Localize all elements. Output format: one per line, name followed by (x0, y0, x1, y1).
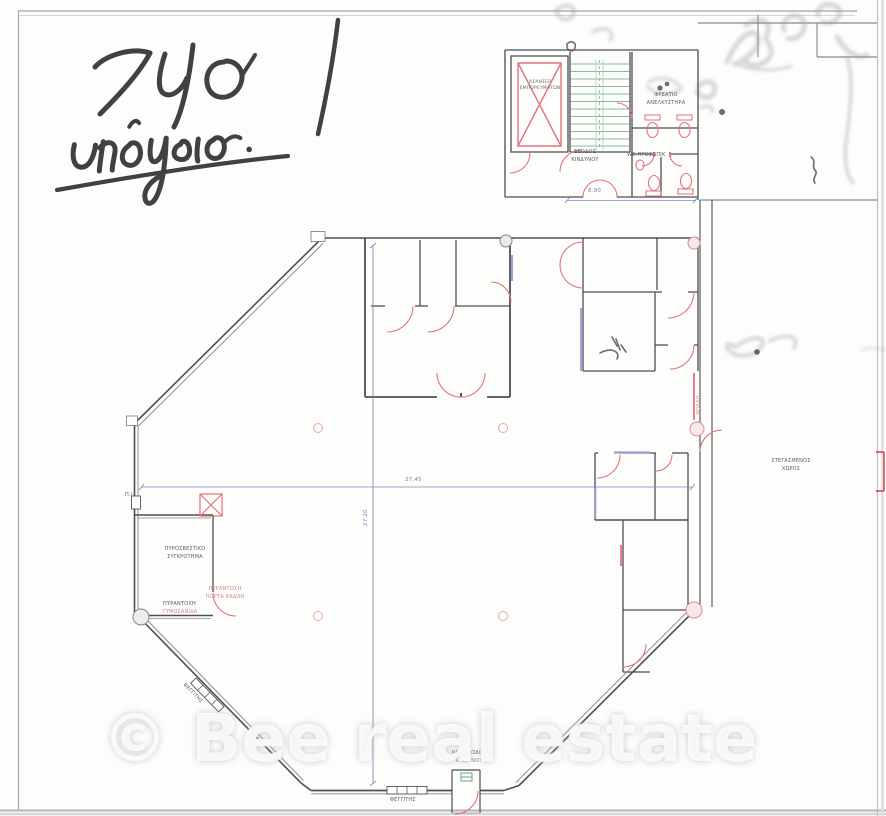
label-fire-board: ΠΥΡΑΝΤΟΧΗ ΓΥΨΟΣΑΝΙΔΑ (163, 601, 197, 616)
label-fire-door: ΠΥΡΑΝΤΟΧΗ ΠΟΡΤΑ ΚΑΔΩΝ (200, 586, 250, 601)
label-staff-wc: WC ΠΡΟΣΩΠΙΚ. (627, 152, 667, 160)
label-roller-shutter: ΡΟΛΛΟ (696, 395, 704, 414)
label-fire-pump-room: ΠΥΡΟΣΒΕΣΤΙΚΟ ΣΥΓΚΡΟΤΗΜΑ (150, 546, 220, 561)
lintel-accents (512, 255, 650, 519)
label-fire-hose-point: Π.Ι. (125, 492, 134, 500)
freight-elevator-shaft (518, 63, 561, 146)
columns (133, 235, 704, 625)
watermark: © Bee real estate (102, 700, 758, 777)
label-skylight-bottom: ΦΕΓΓΙΤΗΣ (390, 797, 416, 805)
dimension-core-width: 8.90 (588, 187, 601, 195)
dimension-vertical: 27.20 (362, 509, 370, 526)
label-emergency-exit: ΕΞΟΔΟΣ ΚΙΝΔΥΝΟΥ (560, 149, 610, 164)
scanned-floor-plan-sheet: 740 υπόγειο. ΑΣΑΝΣΕΡ ΕΜΠΟΡΕΥΜΑΤΩΝ ΦΡΕΑΤΙ… (0, 0, 886, 816)
staircase (571, 60, 629, 150)
label-covered-area: ΣΤΕΓΑΣΜΕΝΟΣ ΧΩΡΟΣ (760, 458, 822, 473)
label-freight-elevator: ΑΣΑΝΣΕΡ ΕΜΠΟΡΕΥΜΑΤΩΝ (518, 80, 562, 93)
fire-damper-box (200, 494, 222, 516)
dimension-horizontal: 27.45 (405, 476, 422, 484)
label-elevator-shaft: ΦΡΕΑΤΙΟ ΑΝΕΛΚΥΣΤΗΡΑ (638, 92, 694, 107)
floor-plan-drawing (0, 0, 886, 816)
